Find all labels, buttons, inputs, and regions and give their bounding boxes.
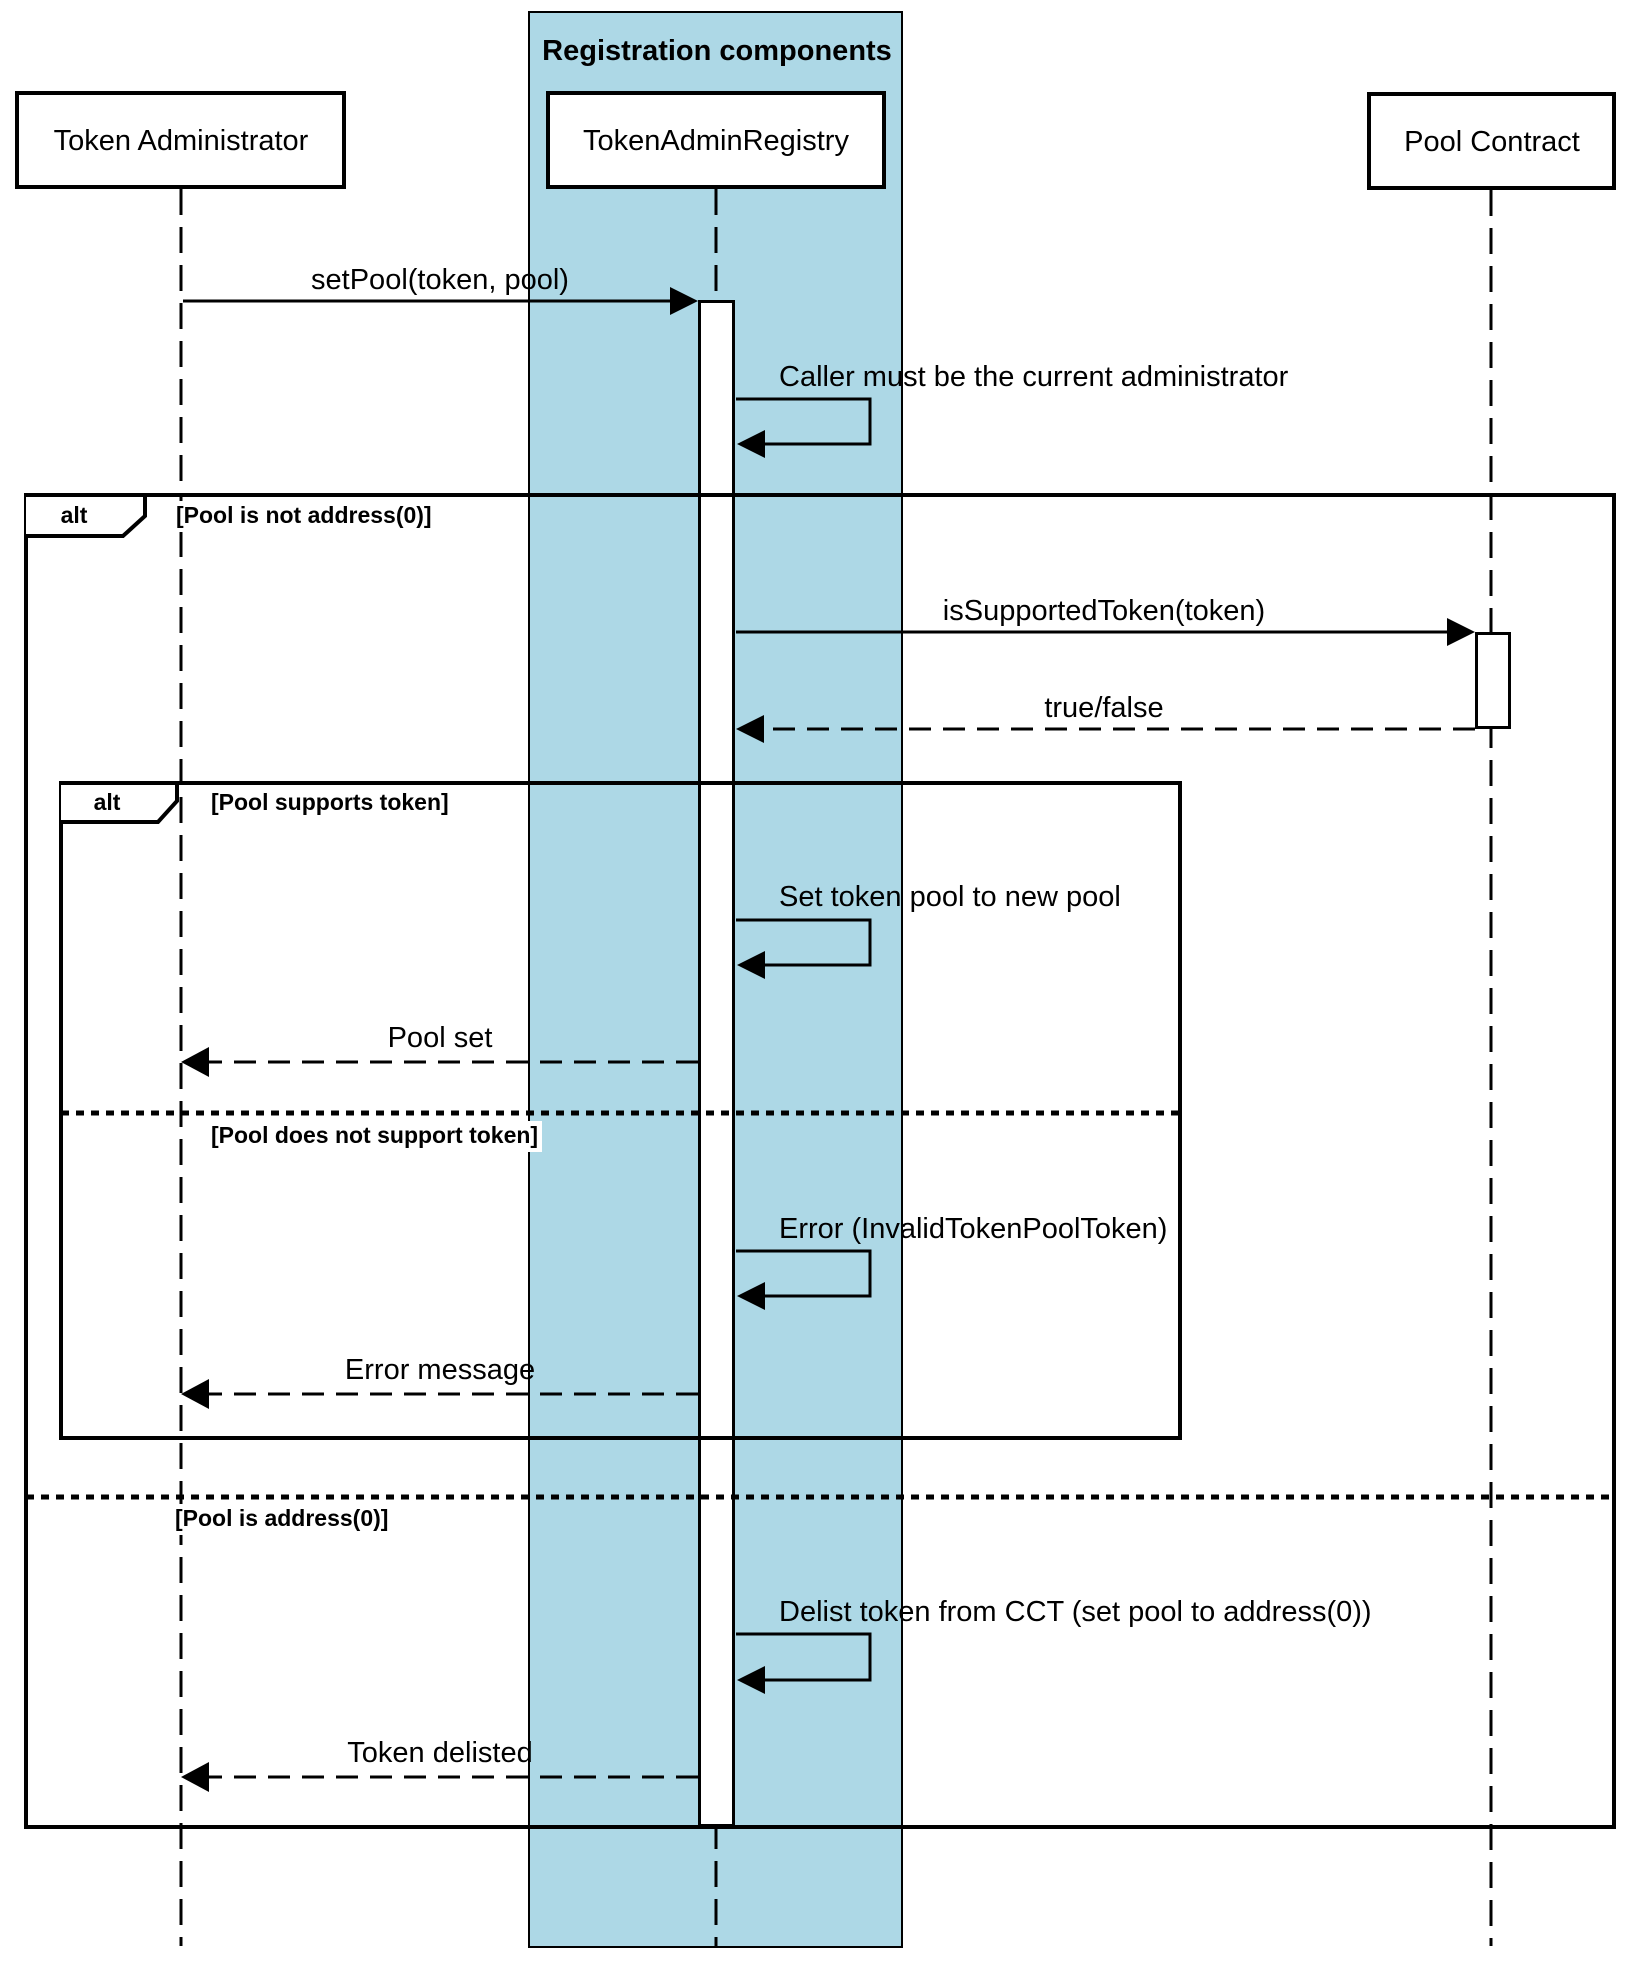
svg-text:true/false: true/false (1044, 692, 1163, 724)
svg-text:[Pool supports token]: [Pool supports token] (211, 789, 449, 815)
svg-text:Token delisted: Token delisted (347, 1737, 532, 1769)
svg-text:alt: alt (94, 789, 121, 815)
svg-text:[Pool is not address(0)]: [Pool is not address(0)] (176, 502, 432, 528)
svg-text:Caller must be the current adm: Caller must be the current administrator (779, 361, 1289, 393)
svg-text:Delist token from CCT (set poo: Delist token from CCT (set pool to addre… (779, 1596, 1372, 1628)
svg-text:[Pool is address(0)]: [Pool is address(0)] (175, 1505, 388, 1531)
svg-text:TokenAdminRegistry: TokenAdminRegistry (583, 125, 849, 157)
svg-text:alt: alt (61, 502, 88, 528)
svg-text:Set token pool to new pool: Set token pool to new pool (779, 881, 1121, 913)
svg-text:Error (InvalidTokenPoolToken): Error (InvalidTokenPoolToken) (779, 1213, 1167, 1245)
svg-text:Pool set: Pool set (388, 1022, 493, 1054)
svg-text:Error message: Error message (345, 1354, 535, 1386)
svg-text:Pool Contract: Pool Contract (1404, 126, 1580, 158)
svg-text:setPool(token, pool): setPool(token, pool) (311, 264, 569, 296)
svg-text:Token Administrator: Token Administrator (54, 125, 309, 157)
svg-text:Registration components: Registration components (542, 35, 892, 67)
svg-text:[Pool does not support token]: [Pool does not support token] (211, 1122, 538, 1148)
svg-text:isSupportedToken(token): isSupportedToken(token) (943, 595, 1265, 627)
